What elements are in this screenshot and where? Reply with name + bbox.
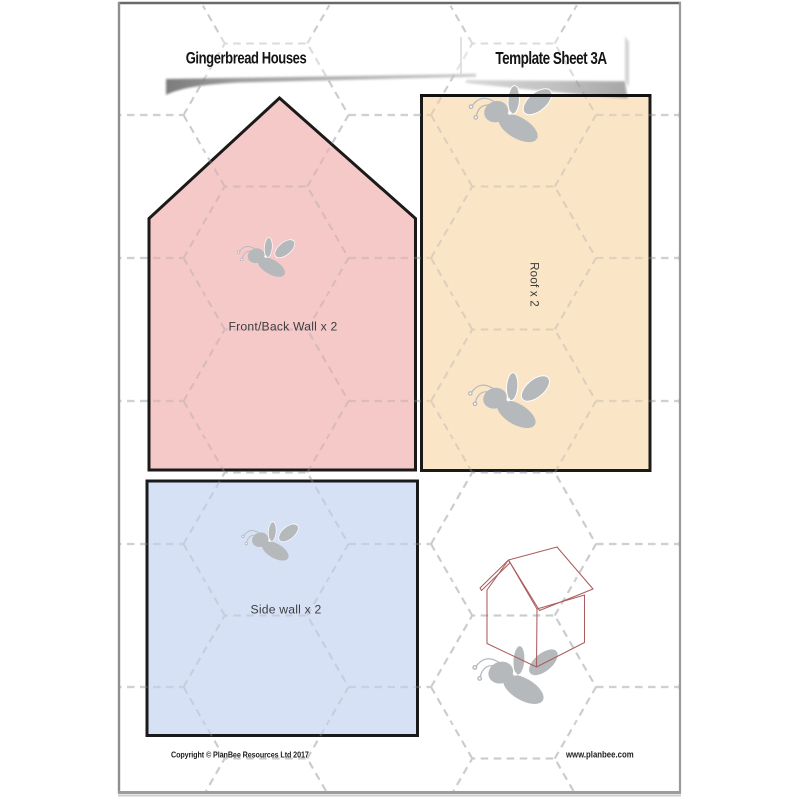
svg-text:Front/Back Wall x 2: Front/Back Wall x 2 [229, 320, 338, 334]
svg-text:Template Sheet 3A: Template Sheet 3A [495, 50, 607, 69]
svg-text:Side wall x 2: Side wall x 2 [250, 603, 321, 617]
svg-text:www.planbee.com: www.planbee.com [565, 749, 634, 760]
svg-text:Copyright © PlanBee Resources: Copyright © PlanBee Resources Ltd 2017 [171, 750, 309, 760]
svg-text:Roof x 2: Roof x 2 [527, 262, 540, 307]
svg-text:Gingerbread Houses: Gingerbread Houses [186, 49, 307, 68]
